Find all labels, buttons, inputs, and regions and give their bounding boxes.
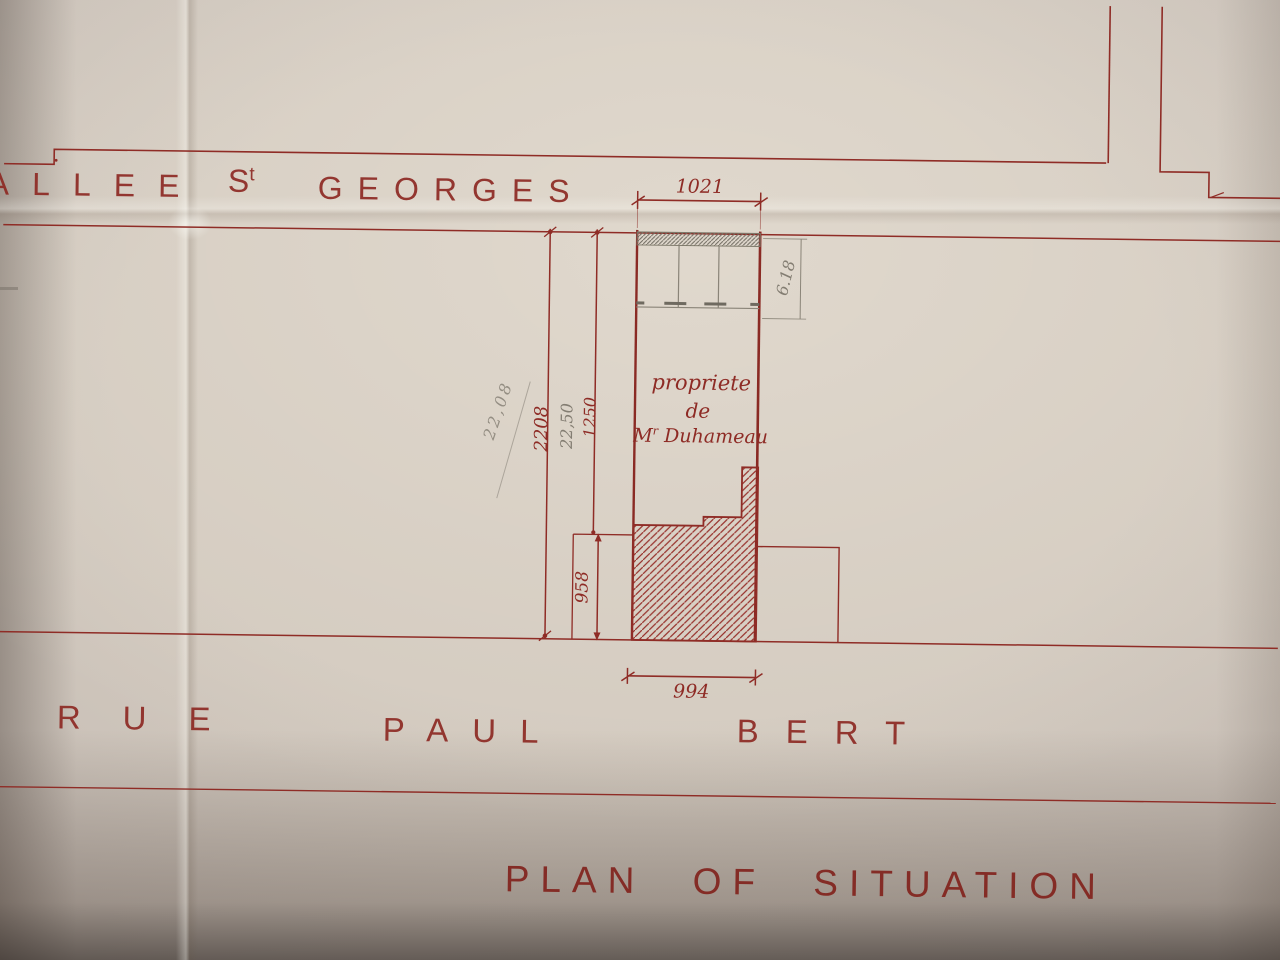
dim-value-1250: 1250 — [580, 397, 600, 438]
rue-south-street-line — [0, 786, 1280, 803]
dim-value-1021: 1021 — [676, 175, 725, 198]
plan-sheet-photo: ALLEE St GEORGES RUE PAUL BERT PLAN OF S… — [0, 0, 1280, 960]
st-superscript: t — [249, 164, 255, 185]
line-dot — [55, 159, 58, 162]
plan-linework — [0, 0, 1280, 960]
street-name-allee: ALLEE — [0, 165, 203, 205]
window-sill-marks — [636, 303, 759, 305]
property-label-line2: de — [685, 399, 710, 423]
dim-1250-line — [593, 229, 597, 534]
owner-superscript: r — [653, 423, 659, 437]
st-base: S — [228, 163, 250, 199]
dim-958-line — [597, 536, 598, 637]
neighbor-plot-outline — [756, 547, 839, 643]
dim-value-2250-pencil: 22,50 — [557, 403, 577, 449]
street-name-bert: BERT — [736, 712, 932, 753]
street-name-st: St — [228, 163, 255, 200]
top-right-building-edge-right — [1160, 0, 1280, 199]
dim-value-2208: 2208 — [531, 406, 553, 452]
street-name-georges: GEORGES — [318, 170, 585, 210]
facade-window-mullions — [678, 245, 719, 308]
owner-prefix: M — [633, 425, 653, 447]
dim-value-994: 994 — [673, 680, 710, 702]
facade-inner-line — [636, 307, 759, 309]
hatched-building-block — [632, 466, 758, 642]
ink-drawing-layer: ALLEE St GEORGES RUE PAUL BERT PLAN OF S… — [0, 0, 1280, 960]
top-right-building-edge-left — [1108, 0, 1110, 163]
dim-994-line — [627, 676, 755, 678]
owner-name: Duhameau — [664, 425, 768, 448]
plan-title: PLAN OF SITUATION — [504, 858, 1107, 908]
dim-1021-extension-lines — [637, 206, 760, 230]
street-name-paul: PAUL — [382, 711, 562, 751]
property-label-owner: Mr Duhameau — [633, 423, 768, 448]
street-name-rue: RUE — [57, 698, 253, 739]
dim-value-958: 958 — [572, 571, 592, 604]
facade-hatched-strip — [637, 232, 760, 247]
dim-1021-line — [638, 200, 761, 202]
pencil-dimension-line — [800, 239, 801, 319]
property-label-line1: propriete — [651, 370, 751, 395]
